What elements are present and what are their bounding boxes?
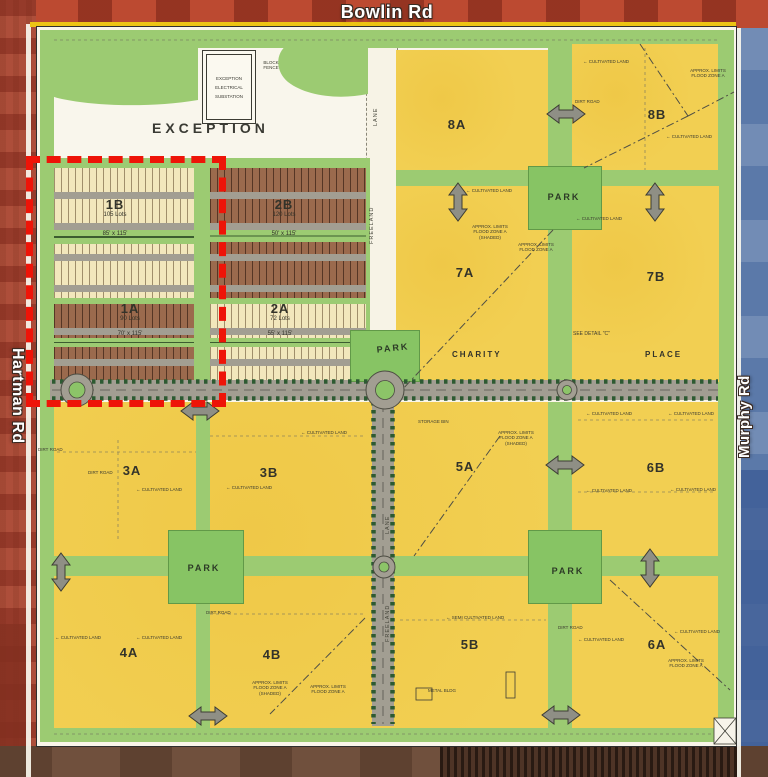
parcel-2A-label: 2A 72 Lots 55' x 115' bbox=[246, 302, 314, 337]
lane-label-north: LANE bbox=[373, 92, 379, 126]
plat-map-stage: EXCEPTION ELECTRICAL SUBSTATION BLOCK FE… bbox=[0, 0, 768, 777]
note-cultivated-8B-top: ← CULTIVATED LAND bbox=[583, 59, 629, 64]
parcel-2B-lots-count: 120 Lots bbox=[250, 212, 318, 219]
note-cultivated-6B-4: ← CULTIVATED LAND bbox=[670, 487, 716, 492]
parcel-8A-area bbox=[396, 50, 548, 172]
park-charity-west bbox=[350, 330, 420, 382]
note-storage-bin-5A: STORAGE BIN bbox=[418, 419, 449, 424]
hartman-rd-label: Hartman Rd bbox=[2, 348, 26, 498]
substation-line2: ELECTRICAL bbox=[207, 85, 251, 90]
bowlin-rd-label: Bowlin Rd bbox=[312, 2, 462, 28]
parcel-7B-label: 7B bbox=[636, 270, 676, 284]
note-cultivated-3B: ← CULTIVATED LAND bbox=[226, 485, 272, 490]
note-cultivated-4A-2: ← CULTIVATED LAND bbox=[136, 635, 182, 640]
note-cultivated-7A-top: ← CULTIVATED LAND bbox=[466, 188, 512, 193]
highlight-selection-box[interactable] bbox=[26, 156, 226, 407]
parcel-5A-label: 5A bbox=[445, 460, 485, 474]
note-semi-cultivated-5B: ← SEMI CULTIVATED LAND bbox=[446, 615, 504, 620]
note-dirt-road-8B: DIRT ROAD bbox=[575, 99, 600, 104]
park-mid-left-label: PARK bbox=[181, 563, 227, 573]
substation-line3: SUBSTATION bbox=[207, 94, 251, 99]
note-dirt-road-3A: DIRT ROAD bbox=[88, 470, 113, 475]
parcel-8B-label: 8B bbox=[637, 108, 677, 122]
charity-label: CHARITY bbox=[452, 350, 502, 359]
freeland-lane-south bbox=[372, 402, 394, 726]
note-cultivated-6B-1: ← CULTIVATED LAND bbox=[586, 411, 632, 416]
freeland-label-north: FREELAND bbox=[369, 198, 375, 244]
note-dirt-road-4B: DIRT ROAD bbox=[206, 610, 231, 615]
park-top-label: PARK bbox=[540, 192, 588, 202]
parcel-2A-lots-count: 72 Lots bbox=[246, 316, 314, 323]
note-dirt-road-6A: DIRT ROAD bbox=[558, 625, 583, 630]
border-road-right bbox=[718, 42, 734, 740]
note-cultivated-3B-top: ← CULTIVATED LAND bbox=[301, 430, 347, 435]
parcel-6A-label: 6A bbox=[637, 638, 677, 652]
note-cultivated-4A-1: ← CULTIVATED LAND bbox=[55, 635, 101, 640]
parcel-2B-lot-size: 50' x 115' bbox=[250, 231, 318, 238]
murphy-rd-label: Murphy Rd bbox=[736, 298, 762, 458]
parcel-4A-label: 4A bbox=[109, 646, 149, 660]
lane-label-south: LANE bbox=[385, 496, 391, 534]
parcel-8A-label: 8A bbox=[437, 118, 477, 132]
note-flood-6A: APPROX. LIMITS FLOOD ZONE A bbox=[664, 658, 708, 669]
parcel-2B-label: 2B 120 Lots 50' x 115' bbox=[250, 198, 318, 237]
parcel-5B-label: 5B bbox=[450, 638, 490, 652]
note-flood-7A-shaded: APPROX. LIMITS FLOOD ZONE A (SHADED) bbox=[468, 224, 512, 240]
note-dirt-road-left: DIRT ROAD bbox=[38, 447, 63, 452]
parcel-3B-label: 3B bbox=[249, 466, 289, 480]
freeland-label-south: FREELAND bbox=[385, 590, 391, 642]
note-flood-8B: APPROX. LIMITS FLOOD ZONE A bbox=[686, 68, 730, 79]
parcel-2A-median bbox=[210, 338, 366, 347]
parcel-2A-id: 2A bbox=[246, 302, 314, 316]
aerial-bottom-dark-patch bbox=[440, 746, 740, 777]
note-cultivated-6B-2: ← CULTIVATED LAND bbox=[668, 411, 714, 416]
note-cultivated-7B: ← CULTIVATED LAND bbox=[576, 216, 622, 221]
note-flood-4B-shaded: APPROX. LIMITS FLOOD ZONE A (SHADED) bbox=[248, 680, 292, 696]
substation-box: EXCEPTION ELECTRICAL SUBSTATION bbox=[202, 50, 256, 124]
place-label: PLACE bbox=[645, 350, 682, 359]
note-cultivated-3A: ← CULTIVATED LAND bbox=[136, 487, 182, 492]
note-cultivated-6A: ← CULTIVATED LAND bbox=[674, 629, 720, 634]
note-cultivated-5B-east: ← CULTIVATED LAND bbox=[578, 637, 624, 642]
parcel-7A-label: 7A bbox=[445, 266, 485, 280]
border-road-bottom bbox=[40, 726, 734, 742]
note-flood-7A: APPROX. LIMITS FLOOD ZONE A bbox=[514, 242, 558, 253]
parcel-3A-label: 3A bbox=[112, 464, 152, 478]
note-metal-bldg-5B: METAL BLDG bbox=[428, 688, 456, 693]
see-detail-note: SEE DETAIL "C" bbox=[573, 331, 610, 337]
exception-label: EXCEPTION bbox=[152, 120, 269, 136]
note-cultivated-8B: ← CULTIVATED LAND bbox=[666, 134, 712, 139]
parcel-4B-label: 4B bbox=[252, 648, 292, 662]
parcel-6B-label: 6B bbox=[636, 461, 676, 475]
block-fence-note: BLOCK FENCE bbox=[258, 60, 284, 71]
parcel-2B-id: 2B bbox=[250, 198, 318, 212]
aerial-right-dark-patch bbox=[740, 470, 768, 770]
substation-text: EXCEPTION ELECTRICAL SUBSTATION bbox=[206, 54, 252, 120]
note-cultivated-6B-3: ← CULTIVATED LAND bbox=[586, 488, 632, 493]
parcel-2A-lot-size: 55' x 115' bbox=[246, 331, 314, 338]
note-flood-5A: APPROX. LIMITS FLOOD ZONE A (SHADED) bbox=[494, 430, 538, 446]
substation-line1: EXCEPTION bbox=[207, 76, 251, 81]
note-flood-4B: APPROX. LIMITS FLOOD ZONE A bbox=[306, 684, 350, 695]
park-mid-right-label: PARK bbox=[545, 566, 591, 576]
